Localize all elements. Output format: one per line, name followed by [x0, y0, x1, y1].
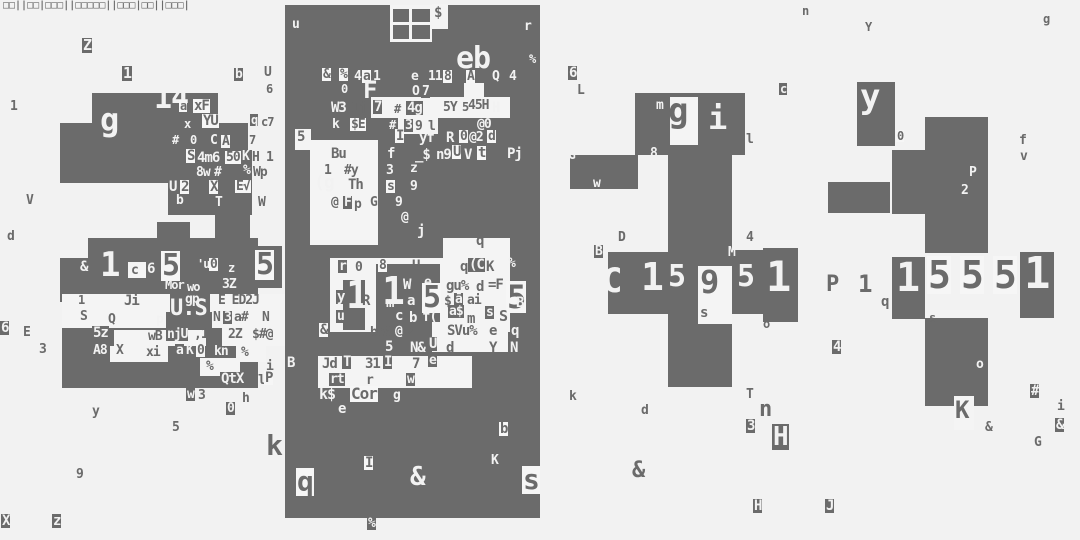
glyph: Bu [331, 147, 346, 161]
glyph: t [477, 146, 486, 160]
glyph: 2 [180, 180, 189, 194]
glyph: 7 [412, 357, 419, 371]
glyph: I [383, 355, 392, 369]
glyph: T [215, 196, 222, 209]
glyph: N& [410, 341, 425, 355]
glyph: V [26, 194, 33, 207]
glyph: n [802, 5, 808, 17]
glyph: T [342, 355, 351, 369]
glyph: E ED2J [218, 294, 259, 307]
glyph: xi [146, 346, 160, 359]
glyph: & [319, 323, 328, 337]
glyph: % [508, 257, 515, 270]
glyph: K [491, 454, 498, 467]
glyph: K [955, 398, 968, 422]
glyph: 5 [172, 421, 179, 434]
glyph: E [23, 326, 30, 339]
glyph: m [656, 99, 663, 112]
glyph: d [641, 404, 648, 417]
glyph: e [411, 70, 418, 83]
glyph: Q [492, 70, 499, 83]
glyph: W [403, 278, 410, 292]
glyph: Ij [351, 101, 366, 115]
glyph: j [417, 224, 424, 238]
glyph: H [492, 101, 499, 115]
glyph: 6 [568, 66, 577, 80]
glyph: b [234, 68, 243, 81]
glyph: d [446, 341, 453, 355]
glyph: 1 [766, 256, 790, 298]
glyph: 1 [10, 100, 17, 113]
glyph: K [241, 150, 250, 163]
glyph: 0 [459, 130, 468, 143]
glyph: O [412, 85, 419, 98]
glyph: a [179, 100, 187, 112]
glyph: n9 [436, 148, 451, 162]
glyph: s [522, 466, 540, 494]
glyph: c7 [261, 116, 273, 128]
glyph: U [169, 180, 176, 194]
glyph: k [332, 118, 339, 131]
block [412, 9, 430, 22]
glyph: r [338, 260, 347, 273]
glyph: D [618, 231, 625, 244]
glyph: m [386, 296, 393, 310]
block [412, 25, 430, 39]
glyph: U [428, 337, 437, 351]
glyph: a# [234, 311, 248, 324]
glyph: k [266, 432, 282, 460]
glyph: Y [865, 21, 871, 33]
glyph: S [80, 310, 87, 323]
glyph: SVu% [447, 324, 477, 338]
glyph: % [367, 517, 376, 530]
glyph: 3 [39, 343, 46, 356]
glyph: % [241, 346, 248, 359]
glyph: B [287, 356, 294, 370]
glyph: p [156, 313, 163, 326]
glyph: E√ [235, 180, 251, 193]
glyph: 7 [421, 85, 430, 98]
glyph: 3 [386, 164, 393, 177]
glyph: 5 [161, 251, 180, 281]
glyph: 1 [858, 272, 871, 296]
glyph: 9 [410, 180, 417, 193]
glyph: c [131, 264, 138, 277]
glyph: Pj [507, 147, 522, 161]
glyph: (C [468, 258, 485, 272]
glyph: g [668, 94, 687, 128]
glyph: njU [166, 328, 188, 341]
glyph: $#@ [252, 328, 272, 341]
glyph: s [485, 306, 494, 319]
glyph: G [568, 149, 575, 162]
glyph: 6 [0, 321, 9, 335]
glyph: 3Z [221, 278, 237, 291]
glyph: 7 [373, 100, 382, 114]
glyph: n [759, 399, 771, 421]
glyph: gu% [446, 279, 468, 293]
glyph: 1 [641, 258, 663, 296]
glyph: c [395, 309, 402, 323]
glyph: s [929, 312, 935, 324]
glyph: s [700, 306, 707, 320]
glyph: 2 [406, 326, 413, 339]
glyph: P [826, 274, 838, 296]
glyph: YU [202, 114, 219, 128]
block [828, 182, 890, 213]
glyph: Jd [322, 357, 337, 371]
glyph: (g [314, 174, 334, 192]
glyph: P [264, 371, 273, 385]
glyph: $E [350, 118, 366, 131]
glyph: 6 [146, 262, 155, 276]
glyph: 1 [266, 151, 273, 164]
glyph: # [1030, 384, 1039, 398]
glyph: d [487, 130, 496, 143]
glyph: q [476, 234, 483, 248]
glyph: yf [419, 131, 434, 145]
glyph: A8 [92, 344, 108, 357]
glyph: 1 [896, 258, 919, 298]
glyph: e [338, 402, 345, 416]
glyph: _$ [415, 148, 430, 162]
glyph: Y [489, 341, 496, 355]
glyph: g [393, 389, 400, 402]
glyph: z [410, 162, 417, 175]
glyph: g [100, 104, 118, 136]
glyph: @2 [469, 131, 483, 144]
glyph: $ [434, 6, 441, 20]
glyph: ai [467, 294, 481, 307]
glyph: A [466, 70, 475, 83]
glyph: @ [394, 325, 403, 338]
glyph: 3 [223, 311, 232, 324]
glyph: q [250, 114, 258, 126]
glyph: U [412, 259, 419, 273]
glyph: l [746, 133, 753, 146]
glyph: i [708, 102, 726, 134]
glyph: S [499, 309, 507, 324]
glyph: 4 [354, 70, 361, 83]
glyph: 9 [700, 266, 718, 298]
glyph: I [395, 129, 404, 143]
glyph: =F [488, 278, 503, 292]
glyph: & [410, 464, 425, 490]
glyph: y [92, 405, 99, 418]
glyph: 1 [78, 294, 84, 306]
glyph: 5 [252, 182, 259, 195]
block [668, 117, 732, 387]
glyph: x [184, 118, 190, 130]
glyph: B [516, 296, 523, 310]
glyph: b [176, 194, 183, 207]
glyph: N [213, 311, 220, 324]
glyph: w [186, 388, 195, 401]
block [393, 25, 409, 39]
glyph: L [577, 84, 584, 97]
glyph: s [386, 180, 395, 193]
glyph: 9 [395, 196, 402, 209]
glyph: v [1020, 150, 1027, 163]
glyph: F [343, 196, 352, 209]
glyph: QtX [220, 372, 244, 386]
glyph: N [510, 341, 517, 355]
glyph: 5 [927, 256, 951, 294]
glyph: 11 [428, 70, 442, 83]
glyph: f [1019, 134, 1026, 147]
glyph: Cor [350, 386, 378, 402]
glyph: X [116, 344, 123, 357]
glyph: 4 [509, 70, 516, 83]
glyph: R [446, 131, 453, 145]
glyph: #y [344, 164, 358, 177]
glyph: 5 [297, 130, 304, 144]
glyph: 8w [196, 166, 210, 179]
glyph: @ [400, 211, 409, 224]
glyph: 4 [746, 231, 753, 244]
glyph: 45H [468, 99, 488, 112]
glyph: wB [148, 330, 162, 343]
glyph: 0 [896, 130, 904, 142]
glyph: 5 [385, 340, 392, 354]
glyph: & [985, 421, 992, 434]
glyph: 5z [92, 326, 109, 340]
glyph: 4 [832, 340, 841, 354]
glyph: y [860, 80, 879, 114]
glyph: 50 [225, 151, 241, 164]
glyph: k$ [319, 387, 335, 402]
glyph: C [210, 134, 217, 147]
glyph: o [976, 358, 983, 371]
glyph: º [188, 88, 193, 98]
glyph: 0 [341, 83, 347, 95]
glyph: I [364, 456, 373, 470]
glyph: a [175, 344, 184, 357]
glyph: y [336, 290, 345, 304]
glyph: 8 [443, 70, 452, 83]
glyph: 1 [485, 84, 492, 97]
glyph: b [409, 311, 416, 325]
glyph: 0 [226, 402, 235, 415]
glyph: h [242, 392, 249, 405]
glyph: 3 [746, 419, 755, 433]
glyph: 31 [365, 357, 380, 371]
glyph: 0 [190, 134, 196, 146]
glyph: q [511, 324, 518, 338]
glyph: q [296, 468, 314, 496]
glyph: 5 [668, 262, 685, 292]
glyph: & [1055, 418, 1064, 432]
glyph: N [262, 311, 269, 324]
glyph: 0 [209, 258, 218, 271]
glyph: q [881, 295, 888, 309]
glyph: & [632, 460, 644, 482]
glyph: T [746, 388, 753, 401]
glyph: p [354, 198, 361, 211]
glyph: Th [348, 178, 363, 192]
glyph: B [594, 245, 603, 258]
glyph: V [463, 148, 472, 162]
glyph: e [428, 354, 437, 367]
glyph: 4g [406, 101, 423, 115]
glyph: S [186, 149, 195, 163]
glyph: 5 [993, 256, 1017, 294]
glyph: P [969, 166, 976, 179]
glyph: U [264, 66, 271, 79]
glyph: 1 [122, 66, 132, 81]
glyph: 0 [196, 344, 205, 357]
glyph: d [7, 230, 14, 243]
glyph: 5 [255, 250, 274, 280]
glyph: K [186, 344, 193, 357]
glyph: Q [108, 313, 115, 326]
glyph: q [460, 260, 467, 274]
glyph: u [292, 18, 299, 31]
glyph: 5 [737, 262, 754, 292]
glyph: 3 [198, 389, 205, 402]
header-string: □□||□□|□□□||□□□□□||□□□|□□||□□□| [3, 1, 190, 11]
glyph: H [753, 499, 762, 513]
glyph: be0 [370, 326, 390, 339]
glyph: 7 [249, 134, 255, 146]
block [925, 117, 988, 253]
glyph: X [1, 514, 10, 528]
glyph: Wp [253, 166, 267, 179]
glyph: 2 [961, 184, 968, 197]
glyph: # [172, 134, 178, 146]
glyph: z [52, 514, 61, 528]
glyph: 3 [404, 119, 413, 132]
glyph: f( [422, 310, 437, 324]
glyph: c [779, 83, 787, 95]
glyph: R [362, 294, 369, 308]
glyph: 6 [266, 83, 272, 95]
glyph: % [339, 68, 348, 81]
glyph: f [387, 147, 394, 161]
glyph: w [406, 373, 415, 386]
glyph: i [1057, 400, 1064, 413]
glyph: g [1043, 13, 1049, 25]
glitch-canvas: □□||□□|□□□||□□□□□||□□□|□□||□□□| Z1bU61g1… [0, 0, 1080, 540]
glyph: o [763, 318, 769, 330]
glyph: K [486, 260, 493, 274]
glyph: u [336, 310, 345, 323]
glyph: % [243, 164, 250, 177]
glyph: @ [330, 196, 339, 209]
glyph: W [258, 196, 265, 209]
glyph: z [228, 262, 234, 274]
glyph: J [825, 499, 834, 513]
glyph: r [524, 20, 531, 33]
glyph: H [772, 424, 789, 450]
glyph: w [593, 177, 600, 190]
glyph: 4m6 [197, 151, 219, 165]
glyph: & [80, 260, 87, 274]
glyph: 9 [76, 468, 83, 481]
glyph: 'u [197, 258, 209, 270]
glyph: U [452, 145, 461, 159]
glyph: kn [214, 345, 228, 358]
glyph: G [1034, 436, 1041, 449]
glyph: H [252, 151, 259, 164]
glyph: 5 [960, 256, 984, 294]
block [570, 155, 638, 189]
glyph: 1 [100, 248, 119, 282]
glyph: W3 [331, 101, 346, 115]
block [892, 150, 925, 214]
glyph: b [499, 422, 508, 436]
glyph: C [602, 264, 621, 298]
glyph: G [370, 196, 377, 209]
glyph: a [407, 294, 414, 308]
glyph: Z [82, 38, 92, 53]
glyph: e [489, 324, 496, 338]
glyph: a$ [448, 305, 464, 318]
glyph: 5Y [443, 101, 457, 114]
glyph: M [728, 246, 735, 259]
glyph: k [569, 390, 576, 403]
glyph: A [221, 135, 230, 148]
block [393, 9, 409, 22]
glyph: 2Z [228, 328, 242, 341]
glyph: % [206, 360, 213, 373]
glyph: # [214, 166, 221, 179]
glyph: U.S [170, 298, 207, 320]
glyph: Ji [124, 294, 139, 308]
glyph: & [322, 68, 331, 81]
glyph: 1 [1024, 252, 1050, 296]
glyph: Mor [165, 279, 184, 291]
glyph: # [394, 103, 400, 115]
glyph: d [476, 280, 483, 294]
glyph: 5 [462, 101, 468, 113]
glyph: 8 [650, 147, 657, 160]
glyph: xF [193, 99, 210, 113]
glyph: % [529, 53, 535, 65]
glyph: Q [648, 170, 660, 192]
glyph: ,1 [194, 328, 208, 341]
glyph: X [209, 180, 218, 194]
